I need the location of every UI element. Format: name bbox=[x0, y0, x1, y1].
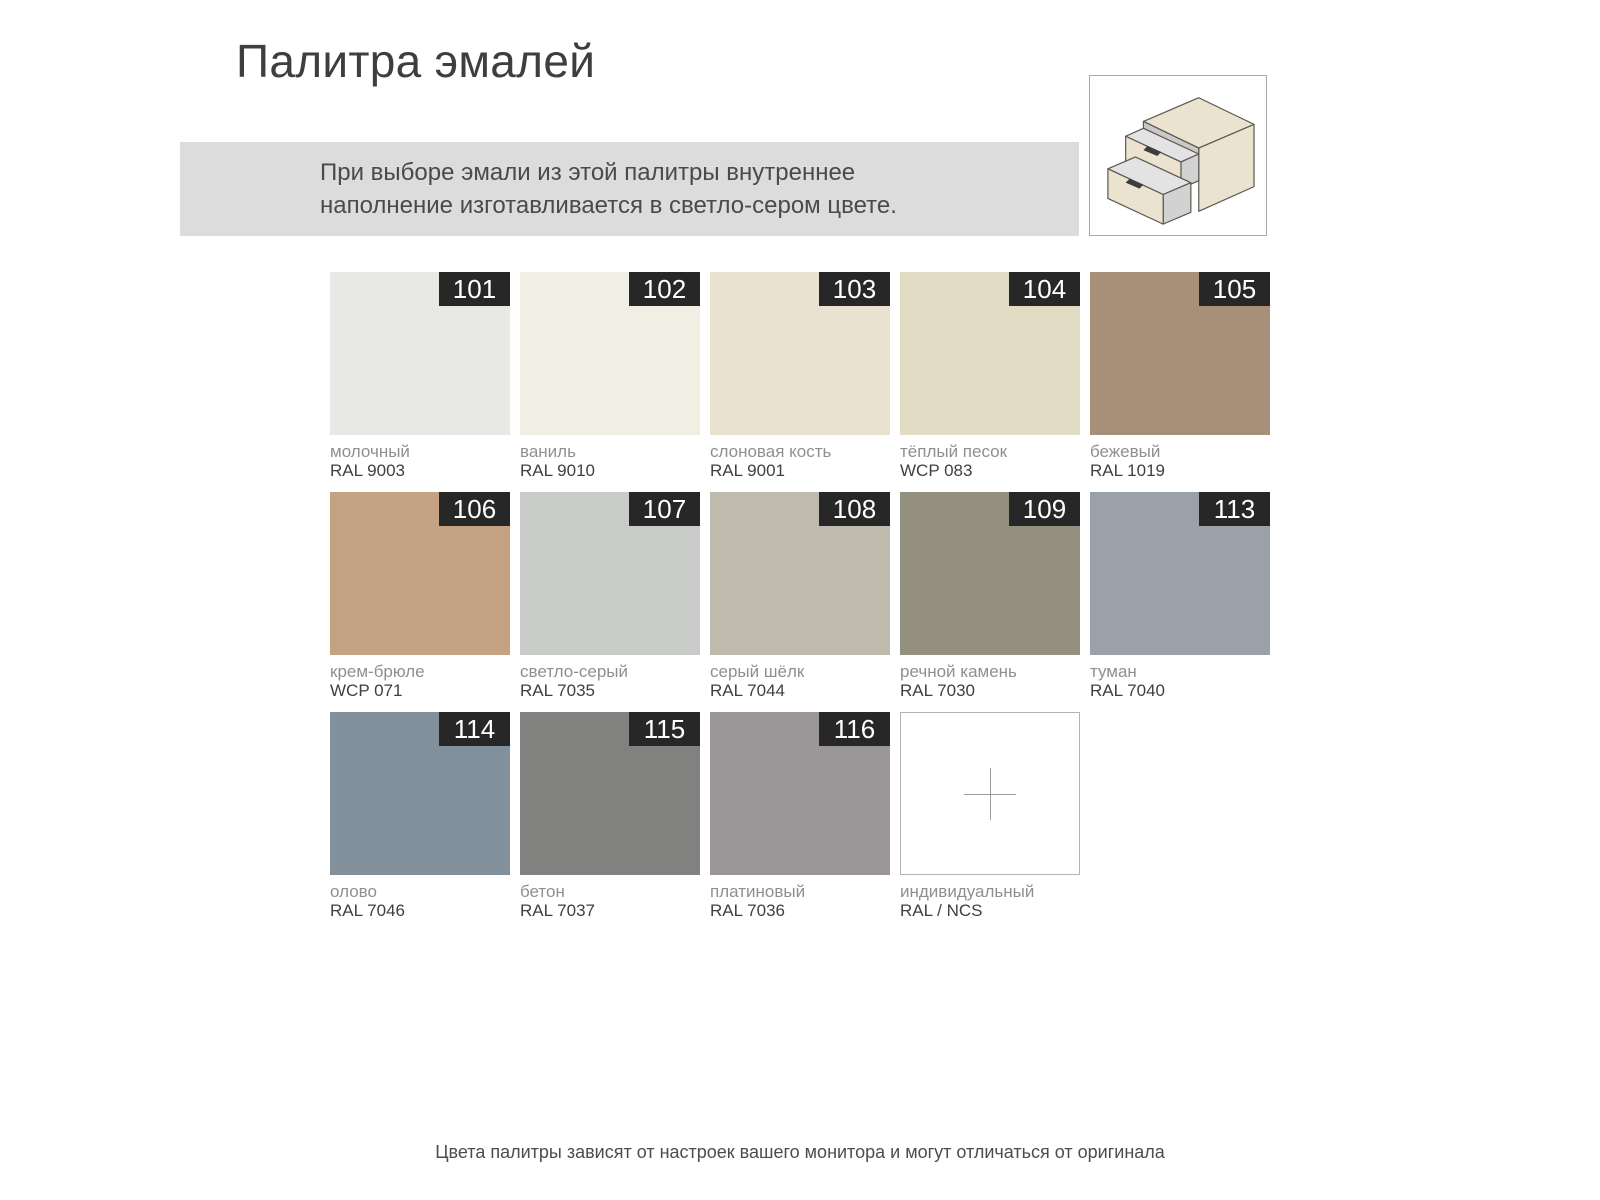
swatch-cell-101: 101 молочный RAL 9003 bbox=[330, 272, 510, 479]
swatch-color-block[interactable]: 108 bbox=[710, 492, 890, 655]
swatch-cell-105: 105 бежевый RAL 1019 bbox=[1090, 272, 1270, 479]
swatch-color-block[interactable]: 104 bbox=[900, 272, 1080, 435]
swatch-color-block[interactable]: 113 bbox=[1090, 492, 1270, 655]
swatch-color-block[interactable]: 103 bbox=[710, 272, 890, 435]
swatch-name-label: туман bbox=[1090, 663, 1270, 680]
swatch-name-label: тёплый песок bbox=[900, 443, 1080, 460]
swatch-code-label: RAL 7040 bbox=[1090, 682, 1270, 699]
swatch-number-badge: 115 bbox=[629, 712, 700, 746]
swatch-name-label: речной камень bbox=[900, 663, 1080, 680]
swatch-color-block[interactable]: 106 bbox=[330, 492, 510, 655]
swatch-color-block[interactable]: 109 bbox=[900, 492, 1080, 655]
swatch-number-badge: 114 bbox=[439, 712, 510, 746]
swatch-code-label: RAL 9003 bbox=[330, 462, 510, 479]
swatch-cell-102: 102 ваниль RAL 9010 bbox=[520, 272, 700, 479]
swatch-code-label: RAL 9001 bbox=[710, 462, 890, 479]
swatch-name-label: бетон bbox=[520, 883, 700, 900]
palette-grid: 101 молочный RAL 9003 102 ваниль RAL 901… bbox=[330, 272, 1270, 919]
swatch-number-badge: 105 bbox=[1199, 272, 1270, 306]
swatch-code-label: WCP 083 bbox=[900, 462, 1080, 479]
page-title: Палитра эмалей bbox=[236, 34, 595, 88]
palette-note-text: При выборе эмали из этой палитры внутрен… bbox=[320, 156, 920, 222]
monitor-disclaimer-text: Цвета палитры зависят от настроек вашего… bbox=[0, 1142, 1600, 1163]
swatch-code-label: WCP 071 bbox=[330, 682, 510, 699]
swatch-name-label: олово bbox=[330, 883, 510, 900]
swatch-cell-custom: индивидуальный RAL / NCS bbox=[900, 712, 1080, 919]
swatch-number-badge: 107 bbox=[629, 492, 700, 526]
swatch-color-block[interactable]: 107 bbox=[520, 492, 700, 655]
swatch-code-label: RAL 7046 bbox=[330, 902, 510, 919]
swatch-color-block[interactable]: 114 bbox=[330, 712, 510, 875]
custom-color-plus-icon bbox=[964, 768, 1016, 820]
swatch-color-block[interactable] bbox=[900, 712, 1080, 875]
drawer-unit-icon bbox=[1090, 76, 1266, 235]
swatch-number-badge: 109 bbox=[1009, 492, 1080, 526]
swatch-name-label: слоновая кость bbox=[710, 443, 890, 460]
swatch-color-block[interactable]: 105 bbox=[1090, 272, 1270, 435]
swatch-number-badge: 101 bbox=[439, 272, 510, 306]
swatch-number-badge: 116 bbox=[819, 712, 890, 746]
swatch-cell-107: 107 светло-серый RAL 7035 bbox=[520, 492, 700, 699]
swatch-number-badge: 102 bbox=[629, 272, 700, 306]
swatch-code-label: RAL / NCS bbox=[900, 902, 1080, 919]
swatch-cell-114: 114 олово RAL 7046 bbox=[330, 712, 510, 919]
swatch-name-label: молочный bbox=[330, 443, 510, 460]
swatch-name-label: серый шёлк bbox=[710, 663, 890, 680]
swatch-code-label: RAL 9010 bbox=[520, 462, 700, 479]
swatch-cell-103: 103 слоновая кость RAL 9001 bbox=[710, 272, 890, 479]
swatch-name-label: крем-брюле bbox=[330, 663, 510, 680]
swatch-color-block[interactable]: 102 bbox=[520, 272, 700, 435]
swatch-name-label: бежевый bbox=[1090, 443, 1270, 460]
swatch-number-badge: 106 bbox=[439, 492, 510, 526]
swatch-name-label: ваниль bbox=[520, 443, 700, 460]
drawer-unit-illustration bbox=[1089, 75, 1267, 236]
swatch-cell-106: 106 крем-брюле WCP 071 bbox=[330, 492, 510, 699]
swatch-cell-104: 104 тёплый песок WCP 083 bbox=[900, 272, 1080, 479]
swatch-name-label: платиновый bbox=[710, 883, 890, 900]
swatch-cell-116: 116 платиновый RAL 7036 bbox=[710, 712, 890, 919]
swatch-color-block[interactable]: 116 bbox=[710, 712, 890, 875]
swatch-number-badge: 104 bbox=[1009, 272, 1080, 306]
swatch-code-label: RAL 7030 bbox=[900, 682, 1080, 699]
swatch-cell-115: 115 бетон RAL 7037 bbox=[520, 712, 700, 919]
swatch-color-block[interactable]: 115 bbox=[520, 712, 700, 875]
swatch-name-label: индивидуальный bbox=[900, 883, 1080, 900]
swatch-cell-108: 108 серый шёлк RAL 7044 bbox=[710, 492, 890, 699]
swatch-cell-109: 109 речной камень RAL 7030 bbox=[900, 492, 1080, 699]
swatch-code-label: RAL 7044 bbox=[710, 682, 890, 699]
swatch-name-label: светло-серый bbox=[520, 663, 700, 680]
swatch-number-badge: 113 bbox=[1199, 492, 1270, 526]
swatch-code-label: RAL 7036 bbox=[710, 902, 890, 919]
swatch-cell-113: 113 туман RAL 7040 bbox=[1090, 492, 1270, 699]
swatch-code-label: RAL 7037 bbox=[520, 902, 700, 919]
swatch-number-badge: 103 bbox=[819, 272, 890, 306]
swatch-code-label: RAL 7035 bbox=[520, 682, 700, 699]
swatch-number-badge: 108 bbox=[819, 492, 890, 526]
swatch-code-label: RAL 1019 bbox=[1090, 462, 1270, 479]
swatch-color-block[interactable]: 101 bbox=[330, 272, 510, 435]
palette-note-banner: При выборе эмали из этой палитры внутрен… bbox=[180, 142, 1079, 236]
